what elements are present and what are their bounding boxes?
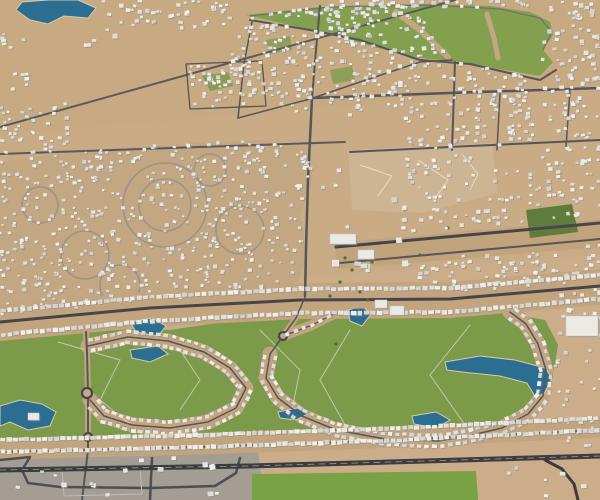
- building: [309, 88, 313, 91]
- building: [354, 261, 361, 266]
- building: [463, 159, 467, 162]
- building: [17, 125, 20, 127]
- building: [369, 54, 373, 57]
- building: [8, 332, 13, 336]
- building: [273, 216, 277, 219]
- building: [65, 244, 68, 246]
- building: [577, 274, 583, 278]
- building: [579, 28, 582, 31]
- building: [485, 209, 490, 213]
- tree: [338, 280, 341, 283]
- building: [503, 275, 506, 278]
- building: [432, 208, 436, 211]
- building: [274, 149, 278, 153]
- building: [312, 62, 316, 65]
- building: [282, 441, 288, 446]
- building: [294, 429, 299, 433]
- building: [302, 51, 306, 55]
- building: [344, 36, 348, 40]
- building: [516, 419, 521, 424]
- building: [457, 435, 462, 439]
- building: [351, 10, 355, 13]
- building: [528, 255, 532, 258]
- building: [410, 181, 414, 184]
- building: [56, 175, 60, 179]
- building: [337, 440, 343, 445]
- building: [71, 215, 74, 218]
- building: [518, 137, 521, 140]
- building: [409, 67, 413, 70]
- building: [518, 104, 521, 107]
- building: [13, 331, 19, 335]
- building: [544, 479, 547, 481]
- building: [273, 313, 279, 317]
- building: [580, 293, 584, 296]
- building: [195, 292, 200, 296]
- building: [539, 302, 545, 307]
- building: [477, 109, 480, 112]
- building: [559, 85, 564, 89]
- building: [226, 233, 230, 236]
- building: [118, 152, 121, 155]
- building: [327, 17, 331, 21]
- building: [495, 256, 500, 260]
- building: [240, 314, 245, 318]
- building: [437, 64, 441, 68]
- building: [210, 433, 215, 438]
- building: [234, 290, 238, 294]
- building: [213, 179, 216, 181]
- building: [6, 437, 12, 442]
- building: [137, 296, 142, 300]
- building: [148, 290, 151, 293]
- building: [341, 428, 347, 433]
- building: [542, 265, 546, 269]
- building: [587, 158, 591, 161]
- building: [396, 439, 402, 443]
- building: [61, 211, 65, 215]
- building: [268, 87, 272, 90]
- building: [307, 64, 311, 67]
- building: [272, 29, 276, 32]
- building: [502, 209, 506, 213]
- building: [214, 315, 219, 320]
- building: [106, 290, 110, 293]
- building: [204, 236, 207, 239]
- building: [205, 445, 210, 449]
- building: [175, 294, 181, 298]
- building: [411, 47, 414, 50]
- building: [252, 431, 256, 435]
- building: [583, 312, 586, 315]
- building: [425, 192, 428, 195]
- building: [340, 27, 344, 31]
- building: [187, 269, 190, 271]
- building: [272, 288, 278, 292]
- building: [421, 46, 426, 51]
- building: [195, 316, 201, 321]
- building: [596, 43, 600, 46]
- building: [319, 31, 324, 36]
- building: [246, 70, 250, 74]
- building: [416, 286, 421, 290]
- building: [53, 304, 58, 308]
- building: [170, 194, 174, 197]
- building: [3, 121, 6, 123]
- building: [503, 95, 507, 98]
- building: [513, 280, 518, 285]
- building: [420, 266, 424, 269]
- building: [330, 62, 334, 65]
- building: [243, 191, 246, 193]
- tree: [343, 256, 346, 259]
- building: [564, 107, 568, 110]
- building: [504, 216, 507, 219]
- building: [549, 118, 553, 120]
- building: [193, 247, 196, 249]
- building: [247, 443, 252, 447]
- building: [95, 155, 99, 158]
- building: [558, 430, 563, 435]
- warehouse-1: [330, 234, 356, 244]
- building: [181, 292, 187, 296]
- building: [133, 434, 137, 438]
- building: [252, 159, 256, 162]
- building: [237, 167, 240, 170]
- building: [306, 441, 311, 445]
- building: [517, 432, 522, 436]
- building: [358, 50, 361, 53]
- building: [294, 218, 296, 220]
- building: [591, 426, 594, 429]
- building: [92, 39, 96, 42]
- building: [24, 449, 29, 453]
- building: [485, 254, 490, 258]
- building: [146, 19, 150, 22]
- building: [370, 2, 375, 6]
- building: [439, 436, 444, 440]
- building: [497, 89, 501, 92]
- building: [263, 166, 267, 169]
- building: [162, 172, 165, 174]
- building: [201, 210, 204, 212]
- building: [80, 186, 83, 188]
- building: [225, 4, 228, 6]
- building: [141, 342, 146, 346]
- building: [42, 437, 47, 441]
- building: [507, 471, 511, 474]
- building: [113, 34, 118, 39]
- building: [231, 232, 235, 235]
- building: [79, 190, 82, 193]
- building: [145, 284, 148, 286]
- building: [211, 105, 214, 107]
- building: [482, 134, 487, 139]
- building: [444, 264, 448, 267]
- building: [455, 309, 459, 314]
- building: [590, 173, 593, 175]
- building: [545, 302, 550, 306]
- building: [547, 29, 552, 34]
- building: [22, 281, 26, 285]
- building: [55, 242, 59, 246]
- building: [485, 421, 490, 425]
- building: [123, 468, 128, 472]
- building: [574, 55, 578, 58]
- building: [141, 331, 146, 335]
- building: [565, 89, 569, 92]
- building: [302, 161, 304, 163]
- building: [459, 111, 464, 115]
- building: [49, 150, 52, 153]
- building: [375, 52, 379, 54]
- building: [351, 311, 357, 315]
- building: [9, 46, 13, 49]
- building: [218, 91, 222, 94]
- building: [253, 443, 258, 447]
- building: [124, 297, 129, 301]
- building: [54, 436, 60, 441]
- building: [556, 270, 559, 272]
- building: [20, 241, 23, 244]
- building: [154, 419, 158, 423]
- building: [369, 61, 373, 64]
- building: [216, 75, 220, 79]
- building: [406, 164, 410, 167]
- building: [420, 115, 424, 118]
- building: [492, 94, 495, 96]
- building: [526, 279, 531, 283]
- building: [346, 29, 351, 33]
- building: [9, 132, 12, 135]
- building: [551, 90, 555, 93]
- building: [8, 187, 11, 190]
- building: [422, 286, 428, 291]
- building: [180, 433, 185, 437]
- building: [42, 252, 46, 255]
- building: [200, 179, 202, 181]
- building: [461, 284, 467, 289]
- building: [547, 194, 551, 197]
- building: [97, 299, 102, 304]
- building: [365, 13, 369, 16]
- building: [336, 428, 341, 433]
- building: [476, 210, 480, 214]
- building: [493, 287, 497, 290]
- building: [422, 26, 425, 29]
- building: [591, 297, 596, 302]
- building: [79, 448, 84, 452]
- building: [311, 311, 317, 316]
- building: [552, 277, 558, 281]
- building: [566, 389, 570, 393]
- building: [111, 233, 114, 236]
- building: [44, 175, 47, 178]
- building: [257, 276, 260, 278]
- building: [529, 202, 532, 204]
- building: [277, 192, 280, 195]
- roundabout: [82, 388, 92, 398]
- building: [234, 68, 239, 72]
- building: [564, 49, 568, 52]
- building: [467, 76, 472, 81]
- building: [125, 340, 130, 344]
- building: [216, 141, 220, 145]
- building: [309, 11, 314, 15]
- building: [491, 98, 495, 101]
- building: [61, 483, 66, 488]
- building: [431, 43, 435, 46]
- building: [473, 90, 476, 93]
- building: [190, 417, 194, 421]
- building: [312, 441, 317, 445]
- building: [264, 191, 268, 194]
- building: [390, 438, 395, 442]
- building: [474, 308, 479, 312]
- building: [50, 291, 53, 293]
- building: [503, 266, 506, 269]
- building: [117, 322, 123, 326]
- building: [564, 398, 568, 401]
- building: [384, 438, 390, 443]
- building: [566, 307, 571, 312]
- building: [162, 181, 165, 184]
- building: [153, 430, 158, 433]
- building: [229, 202, 233, 206]
- building: [227, 80, 231, 84]
- building: [54, 272, 56, 274]
- building: [134, 280, 137, 282]
- building: [518, 82, 523, 86]
- building: [246, 65, 249, 68]
- building: [179, 275, 183, 278]
- building: [542, 40, 546, 44]
- building: [481, 68, 484, 70]
- building: [202, 72, 206, 76]
- building: [244, 26, 248, 29]
- building: [365, 427, 371, 432]
- building: [320, 11, 324, 14]
- building: [558, 332, 562, 335]
- building: [324, 440, 329, 445]
- building: [580, 39, 584, 43]
- building: [498, 433, 504, 437]
- building: [205, 232, 208, 235]
- building: [456, 441, 461, 445]
- building: [247, 162, 251, 165]
- building: [561, 29, 565, 32]
- building: [221, 207, 225, 211]
- building: [355, 7, 358, 10]
- building: [349, 98, 353, 101]
- building: [137, 243, 140, 246]
- building: [0, 250, 4, 254]
- building: [243, 154, 247, 158]
- building: [67, 448, 73, 453]
- building: [271, 241, 275, 244]
- building: [448, 145, 452, 148]
- building: [433, 196, 437, 199]
- building: [514, 111, 518, 114]
- building: [238, 236, 241, 239]
- building: [252, 208, 255, 211]
- building: [440, 444, 445, 448]
- building: [318, 441, 324, 446]
- building: [260, 313, 265, 317]
- building: [228, 432, 233, 436]
- building: [589, 263, 594, 267]
- building: [532, 252, 535, 254]
- building: [462, 434, 468, 438]
- building: [13, 222, 16, 225]
- building: [207, 222, 211, 225]
- building: [494, 169, 498, 172]
- building: [507, 126, 512, 130]
- building: [116, 237, 121, 241]
- building: [259, 168, 262, 171]
- building: [321, 186, 325, 190]
- building: [59, 160, 63, 162]
- building: [445, 227, 448, 229]
- building: [563, 418, 568, 423]
- building: [261, 227, 265, 230]
- building: [494, 282, 499, 286]
- building: [356, 73, 360, 76]
- building: [325, 311, 330, 315]
- building: [369, 17, 372, 19]
- building: [409, 286, 415, 290]
- building: [308, 96, 312, 100]
- building: [141, 284, 144, 286]
- building: [156, 295, 162, 299]
- building: [564, 351, 568, 355]
- building: [13, 438, 18, 442]
- building: [61, 198, 66, 201]
- building: [161, 420, 165, 424]
- building: [193, 25, 197, 28]
- building: [584, 297, 590, 302]
- building: [258, 265, 262, 268]
- building: [206, 266, 209, 268]
- building: [244, 160, 247, 162]
- building: [387, 69, 391, 73]
- building: [228, 290, 233, 294]
- building: [73, 195, 76, 198]
- building: [514, 267, 517, 270]
- building: [62, 285, 65, 288]
- building: [192, 445, 198, 450]
- building: [77, 218, 80, 220]
- building: [204, 433, 210, 438]
- building: [181, 256, 185, 259]
- building: [434, 147, 437, 149]
- building: [576, 110, 579, 113]
- building: [364, 76, 369, 80]
- building: [287, 13, 290, 16]
- building: [146, 232, 150, 236]
- building: [480, 283, 486, 288]
- building: [91, 210, 95, 213]
- building: [529, 194, 532, 197]
- building: [228, 17, 232, 20]
- building: [223, 229, 226, 232]
- building: [509, 137, 514, 141]
- building: [37, 437, 42, 441]
- building: [338, 311, 344, 315]
- building: [587, 132, 591, 135]
- building: [586, 173, 589, 175]
- golf-barn-2: [390, 306, 404, 315]
